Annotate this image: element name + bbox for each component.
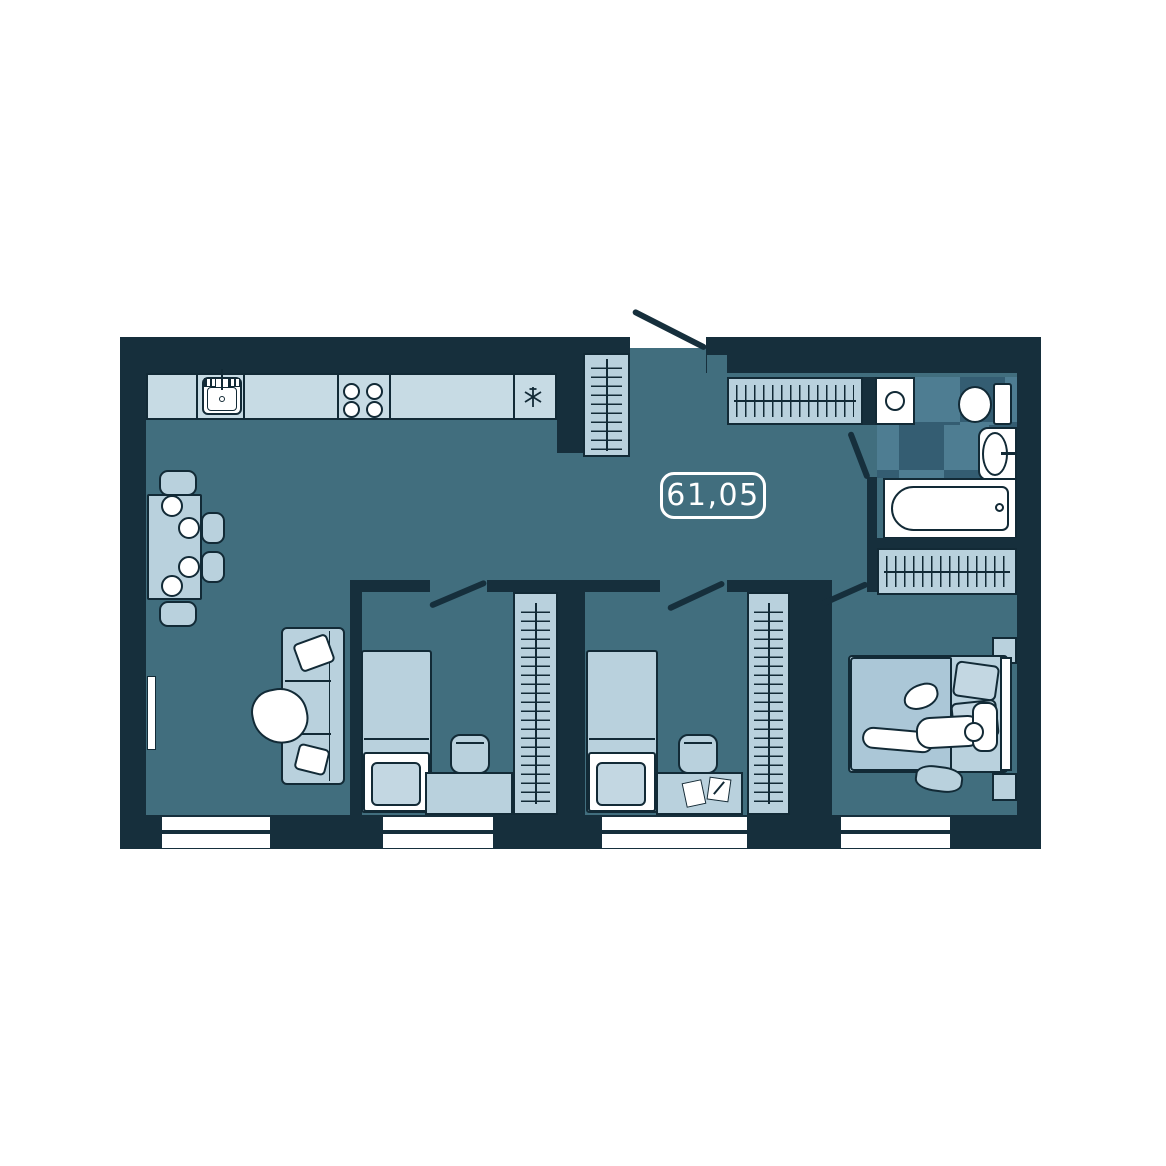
sink-drain: [219, 396, 225, 402]
fridge-icon: [521, 385, 545, 409]
toilet-tank: [993, 383, 1012, 425]
counter-divider: [196, 373, 198, 420]
dish-rack-icon: [204, 378, 216, 387]
stove-burner-icon: [343, 401, 360, 418]
entry-step: [707, 355, 727, 375]
bathtub-drain: [995, 503, 1004, 512]
master-blanket-icon: [850, 657, 952, 771]
bedroom2-chair-icon: [678, 734, 718, 774]
dining-chair-icon: [159, 470, 197, 496]
partition-wall: [558, 580, 585, 815]
wardrobe-hangers: [521, 605, 551, 802]
bedroom1-pillow-icon: [371, 762, 421, 806]
blanket-seam: [589, 738, 655, 740]
washbasin-faucet: [1001, 452, 1017, 455]
bedroom2-pillow-icon: [596, 762, 646, 806]
person-head: [964, 722, 984, 742]
floor-plan: 61,05: [0, 0, 1166, 1166]
window-icon: [841, 834, 950, 848]
tv-icon: [147, 676, 156, 750]
nightstand-icon: [992, 773, 1017, 801]
bedroom2-wardrobe-icon: [747, 592, 790, 815]
plate-icon: [178, 556, 200, 578]
stove-burner-icon: [366, 401, 383, 418]
chair-back-line: [684, 742, 712, 744]
chair-back-line: [456, 742, 484, 744]
counter-divider: [337, 373, 339, 420]
bathtub-inner: [891, 486, 1009, 531]
stove-burner-icon: [366, 383, 383, 400]
entry-opening: [630, 348, 706, 375]
closet-hangers: [886, 556, 1008, 587]
hall-wardrobe-icon: [583, 353, 630, 457]
stove-burner-icon: [343, 383, 360, 400]
partition-wall: [727, 580, 792, 592]
dining-chair-icon: [201, 551, 225, 583]
plate-icon: [178, 517, 200, 539]
window-icon: [841, 817, 950, 830]
partition-wall: [350, 580, 430, 592]
closet-hangers: [736, 385, 855, 417]
coat-closet-icon: [727, 377, 863, 425]
window-icon: [602, 817, 747, 830]
dining-chair-icon: [201, 512, 225, 544]
linen-closet-icon: [877, 548, 1017, 595]
counter-divider: [389, 373, 391, 420]
washing-machine-door: [885, 391, 905, 411]
bedroom1-chair-icon: [450, 734, 490, 774]
window-icon: [162, 817, 270, 830]
area-label: 61,05: [660, 472, 766, 519]
area-value: 61,05: [666, 478, 759, 513]
window-icon: [383, 834, 493, 848]
master-pillow-icon: [952, 660, 1001, 702]
wardrobe-hangers: [754, 605, 782, 802]
sofa-seat-line: [285, 680, 331, 682]
headboard: [1000, 657, 1012, 771]
window-icon: [383, 817, 493, 830]
partition-wall: [790, 580, 832, 815]
window-icon: [162, 834, 270, 848]
plate-icon: [161, 575, 183, 597]
plate-icon: [161, 495, 183, 517]
bathroom-wall: [877, 538, 1017, 548]
wardrobe-hangers: [591, 360, 622, 450]
blanket-seam: [364, 738, 429, 740]
toilet-icon: [958, 386, 992, 423]
alcove-wall: [557, 337, 583, 453]
bedroom1-desk-icon: [425, 772, 513, 815]
counter-divider: [243, 373, 245, 420]
counter-divider: [513, 373, 515, 420]
bathroom-wall: [867, 477, 877, 592]
bedroom1-wardrobe-icon: [513, 592, 558, 815]
faucet-icon: [221, 369, 223, 390]
dining-chair-icon: [159, 601, 197, 627]
window-icon: [602, 834, 747, 848]
dish-rack-icon: [228, 378, 240, 387]
